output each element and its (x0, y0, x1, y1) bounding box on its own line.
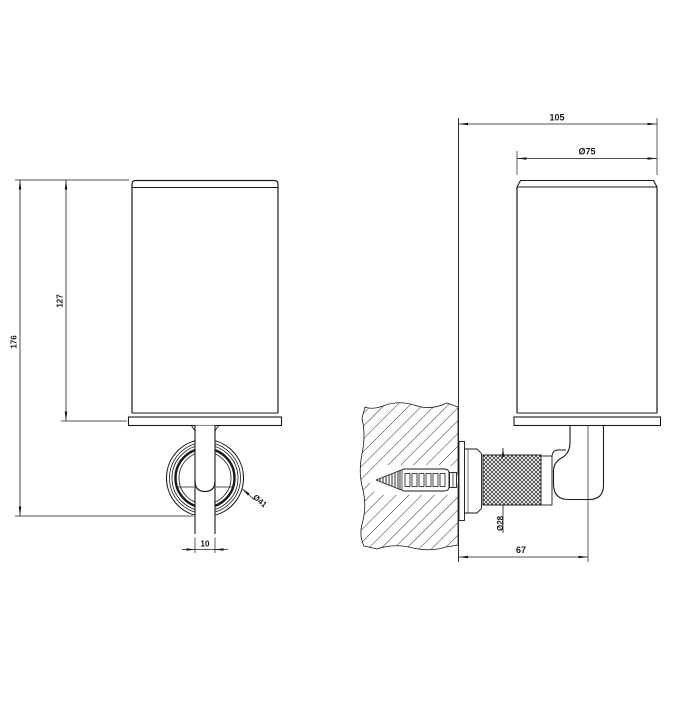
drawing-svg: 176 127 Ø41 10 (0, 0, 700, 700)
dim-label-stem-width: 10 (201, 540, 210, 549)
dim-label-knurl-diameter: Ø28 (496, 515, 505, 531)
collar (541, 456, 552, 505)
dim-label-overall-depth: 105 (549, 113, 564, 123)
dim-label-cup-diameter: Ø75 (578, 147, 595, 157)
flange (459, 442, 482, 521)
dim-label-overall-height: 176 (10, 335, 19, 349)
dim-label-cup-height: 127 (56, 294, 65, 308)
anchor-body (400, 469, 449, 491)
knurl (483, 455, 541, 505)
dim-label-wall-to-holder: 67 (516, 545, 526, 555)
stem (192, 426, 219, 535)
technical-drawing-canvas: 176 127 Ø41 10 (0, 0, 700, 700)
drawing-background (0, 0, 700, 700)
